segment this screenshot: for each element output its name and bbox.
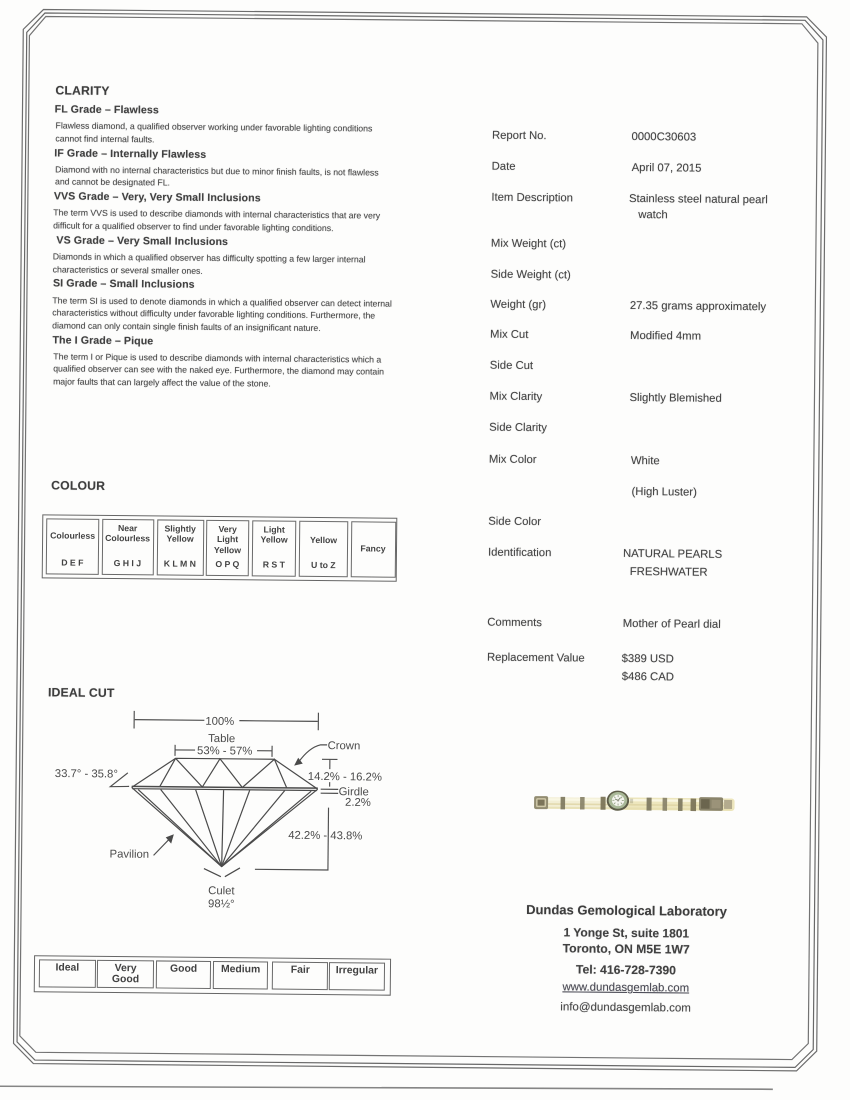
svg-text:98½°: 98½° (208, 898, 235, 910)
svg-text:2.2%: 2.2% (345, 797, 371, 809)
svg-text:Crown: Crown (328, 740, 361, 752)
svg-text:53% - 57%: 53% - 57% (197, 745, 252, 758)
svg-text:Pavilion: Pavilion (110, 848, 150, 860)
svg-text:Table: Table (208, 733, 235, 745)
svg-text:42.2% - 43.8%: 42.2% - 43.8% (288, 830, 362, 843)
svg-text:Culet: Culet (208, 885, 235, 897)
svg-text:33.7° - 35.8°: 33.7° - 35.8° (55, 768, 118, 781)
svg-text:100%: 100% (205, 716, 234, 728)
svg-text:14.2% - 16.2%: 14.2% - 16.2% (308, 771, 382, 784)
